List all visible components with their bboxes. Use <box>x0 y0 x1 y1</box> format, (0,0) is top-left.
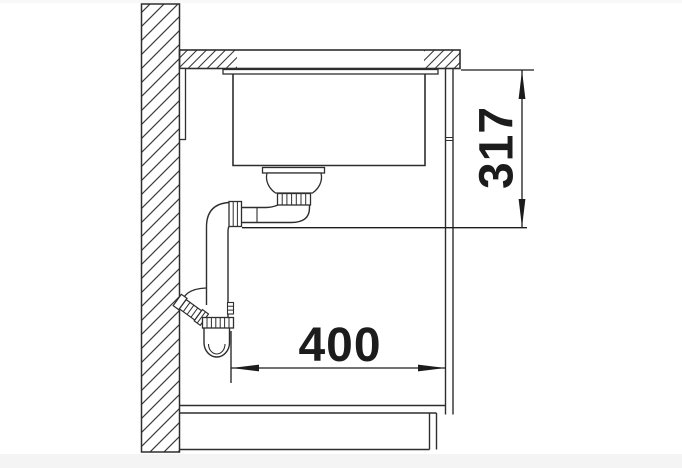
footer-bar <box>0 454 682 468</box>
wall-batten <box>180 69 186 140</box>
union-nut-left <box>229 202 242 227</box>
wall-section <box>142 4 180 452</box>
strainer-body <box>266 173 321 193</box>
worktop-hatch-left <box>180 50 238 69</box>
top-strip <box>0 0 682 3</box>
dimension-horizontal-label: 400 <box>298 319 381 372</box>
dimension-vertical-label: 317 <box>471 106 524 189</box>
strainer-flange <box>263 168 325 174</box>
installation-drawing: 317 400 <box>0 0 682 468</box>
pipe-clip <box>228 303 234 315</box>
sink-rim <box>223 70 438 75</box>
installation-drawing-page: 317 400 <box>0 0 682 468</box>
worktop-hatch-right <box>424 50 460 69</box>
